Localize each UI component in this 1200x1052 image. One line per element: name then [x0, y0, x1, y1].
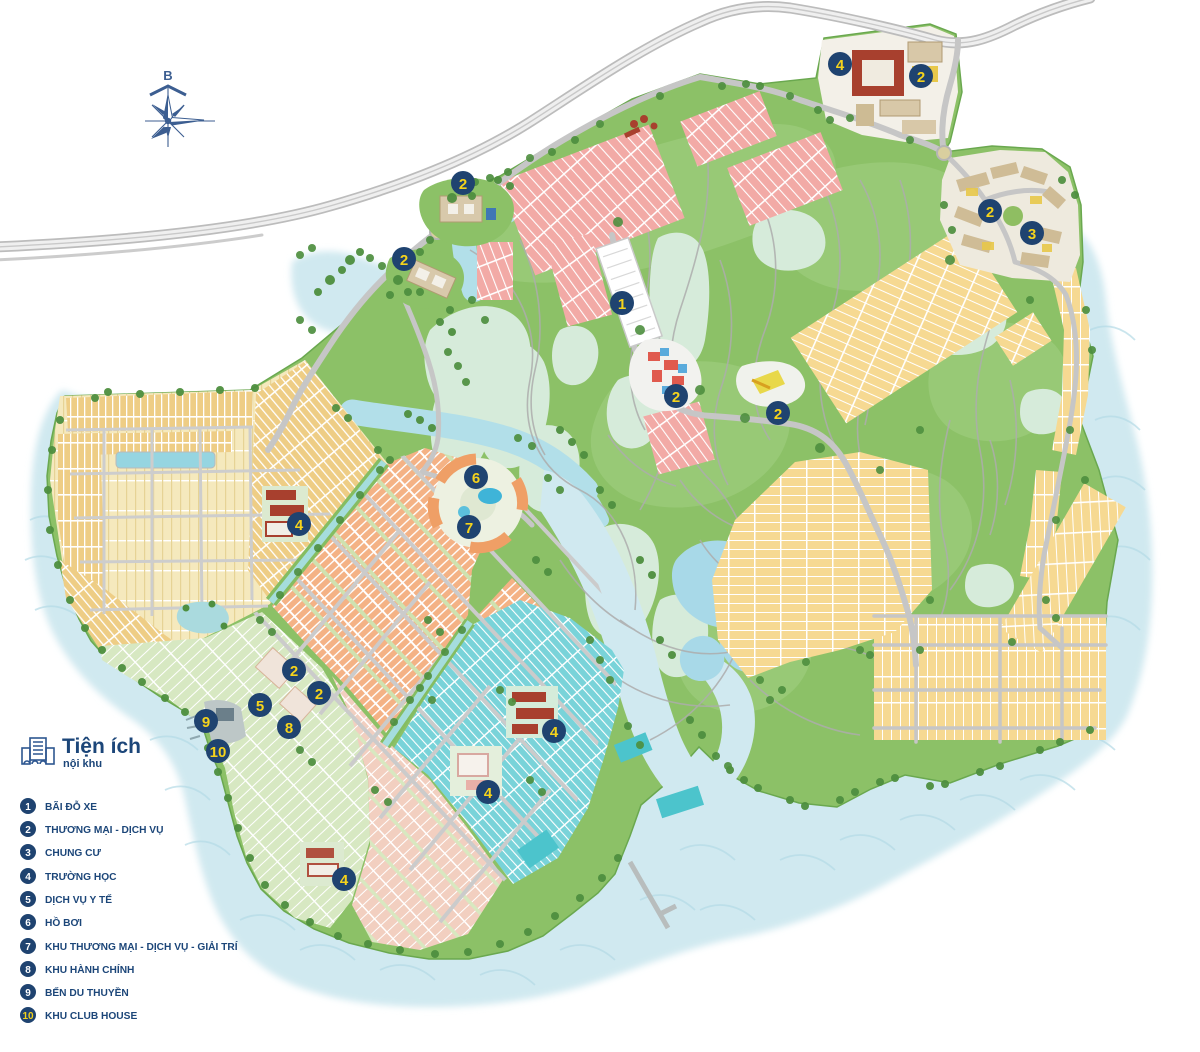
svg-text:2: 2 — [672, 389, 680, 406]
svg-text:DỊCH VỤ Y TẾ: DỊCH VỤ Y TẾ — [45, 893, 112, 906]
svg-text:TRƯỜNG HỌC: TRƯỜNG HỌC — [45, 870, 117, 883]
svg-text:KHU HÀNH CHÍNH: KHU HÀNH CHÍNH — [45, 963, 134, 976]
svg-text:4: 4 — [836, 57, 845, 74]
svg-text:1: 1 — [618, 296, 626, 313]
svg-text:2: 2 — [917, 69, 925, 86]
svg-text:THƯƠNG MẠI - DỊCH VỤ: THƯƠNG MẠI - DỊCH VỤ — [45, 825, 163, 836]
svg-text:CHUNG CƯ: CHUNG CƯ — [45, 848, 102, 859]
svg-text:9: 9 — [202, 714, 210, 731]
svg-text:nội khu: nội khu — [63, 758, 102, 770]
svg-text:HỒ BƠI: HỒ BƠI — [45, 916, 82, 929]
svg-text:6: 6 — [25, 918, 31, 929]
svg-text:2: 2 — [290, 663, 298, 680]
svg-text:KHU THƯƠNG MẠI - DỊCH VỤ - GIẢ: KHU THƯƠNG MẠI - DỊCH VỤ - GIẢI TRÍ — [45, 940, 239, 953]
svg-text:10: 10 — [22, 1011, 34, 1022]
svg-text:3: 3 — [1028, 226, 1036, 243]
svg-text:4: 4 — [295, 517, 304, 534]
svg-text:4: 4 — [484, 785, 493, 802]
svg-text:1: 1 — [25, 802, 31, 813]
svg-text:7: 7 — [465, 520, 473, 537]
svg-text:2: 2 — [459, 176, 467, 193]
svg-text:9: 9 — [25, 988, 31, 999]
svg-text:4: 4 — [340, 872, 349, 889]
svg-text:3: 3 — [25, 848, 31, 859]
svg-text:KHU CLUB HOUSE: KHU CLUB HOUSE — [45, 1011, 137, 1022]
svg-text:5: 5 — [25, 895, 31, 906]
svg-text:8: 8 — [25, 965, 31, 976]
svg-text:BẾN DU THUYỀN: BẾN DU THUYỀN — [45, 986, 129, 999]
svg-text:2: 2 — [774, 406, 782, 423]
svg-text:5: 5 — [256, 698, 264, 715]
svg-text:BÃI ĐỖ XE: BÃI ĐỖ XE — [45, 800, 97, 813]
svg-text:2: 2 — [25, 825, 31, 836]
svg-text:7: 7 — [25, 942, 31, 953]
svg-text:10: 10 — [210, 744, 227, 761]
svg-text:Tiện ích: Tiện ích — [62, 735, 141, 758]
svg-text:6: 6 — [472, 470, 480, 487]
svg-text:B: B — [163, 68, 172, 83]
svg-text:2: 2 — [986, 204, 994, 221]
svg-text:4: 4 — [25, 872, 31, 883]
svg-text:8: 8 — [285, 720, 293, 737]
svg-text:2: 2 — [315, 686, 323, 703]
svg-text:2: 2 — [400, 252, 408, 269]
svg-text:4: 4 — [550, 724, 559, 741]
